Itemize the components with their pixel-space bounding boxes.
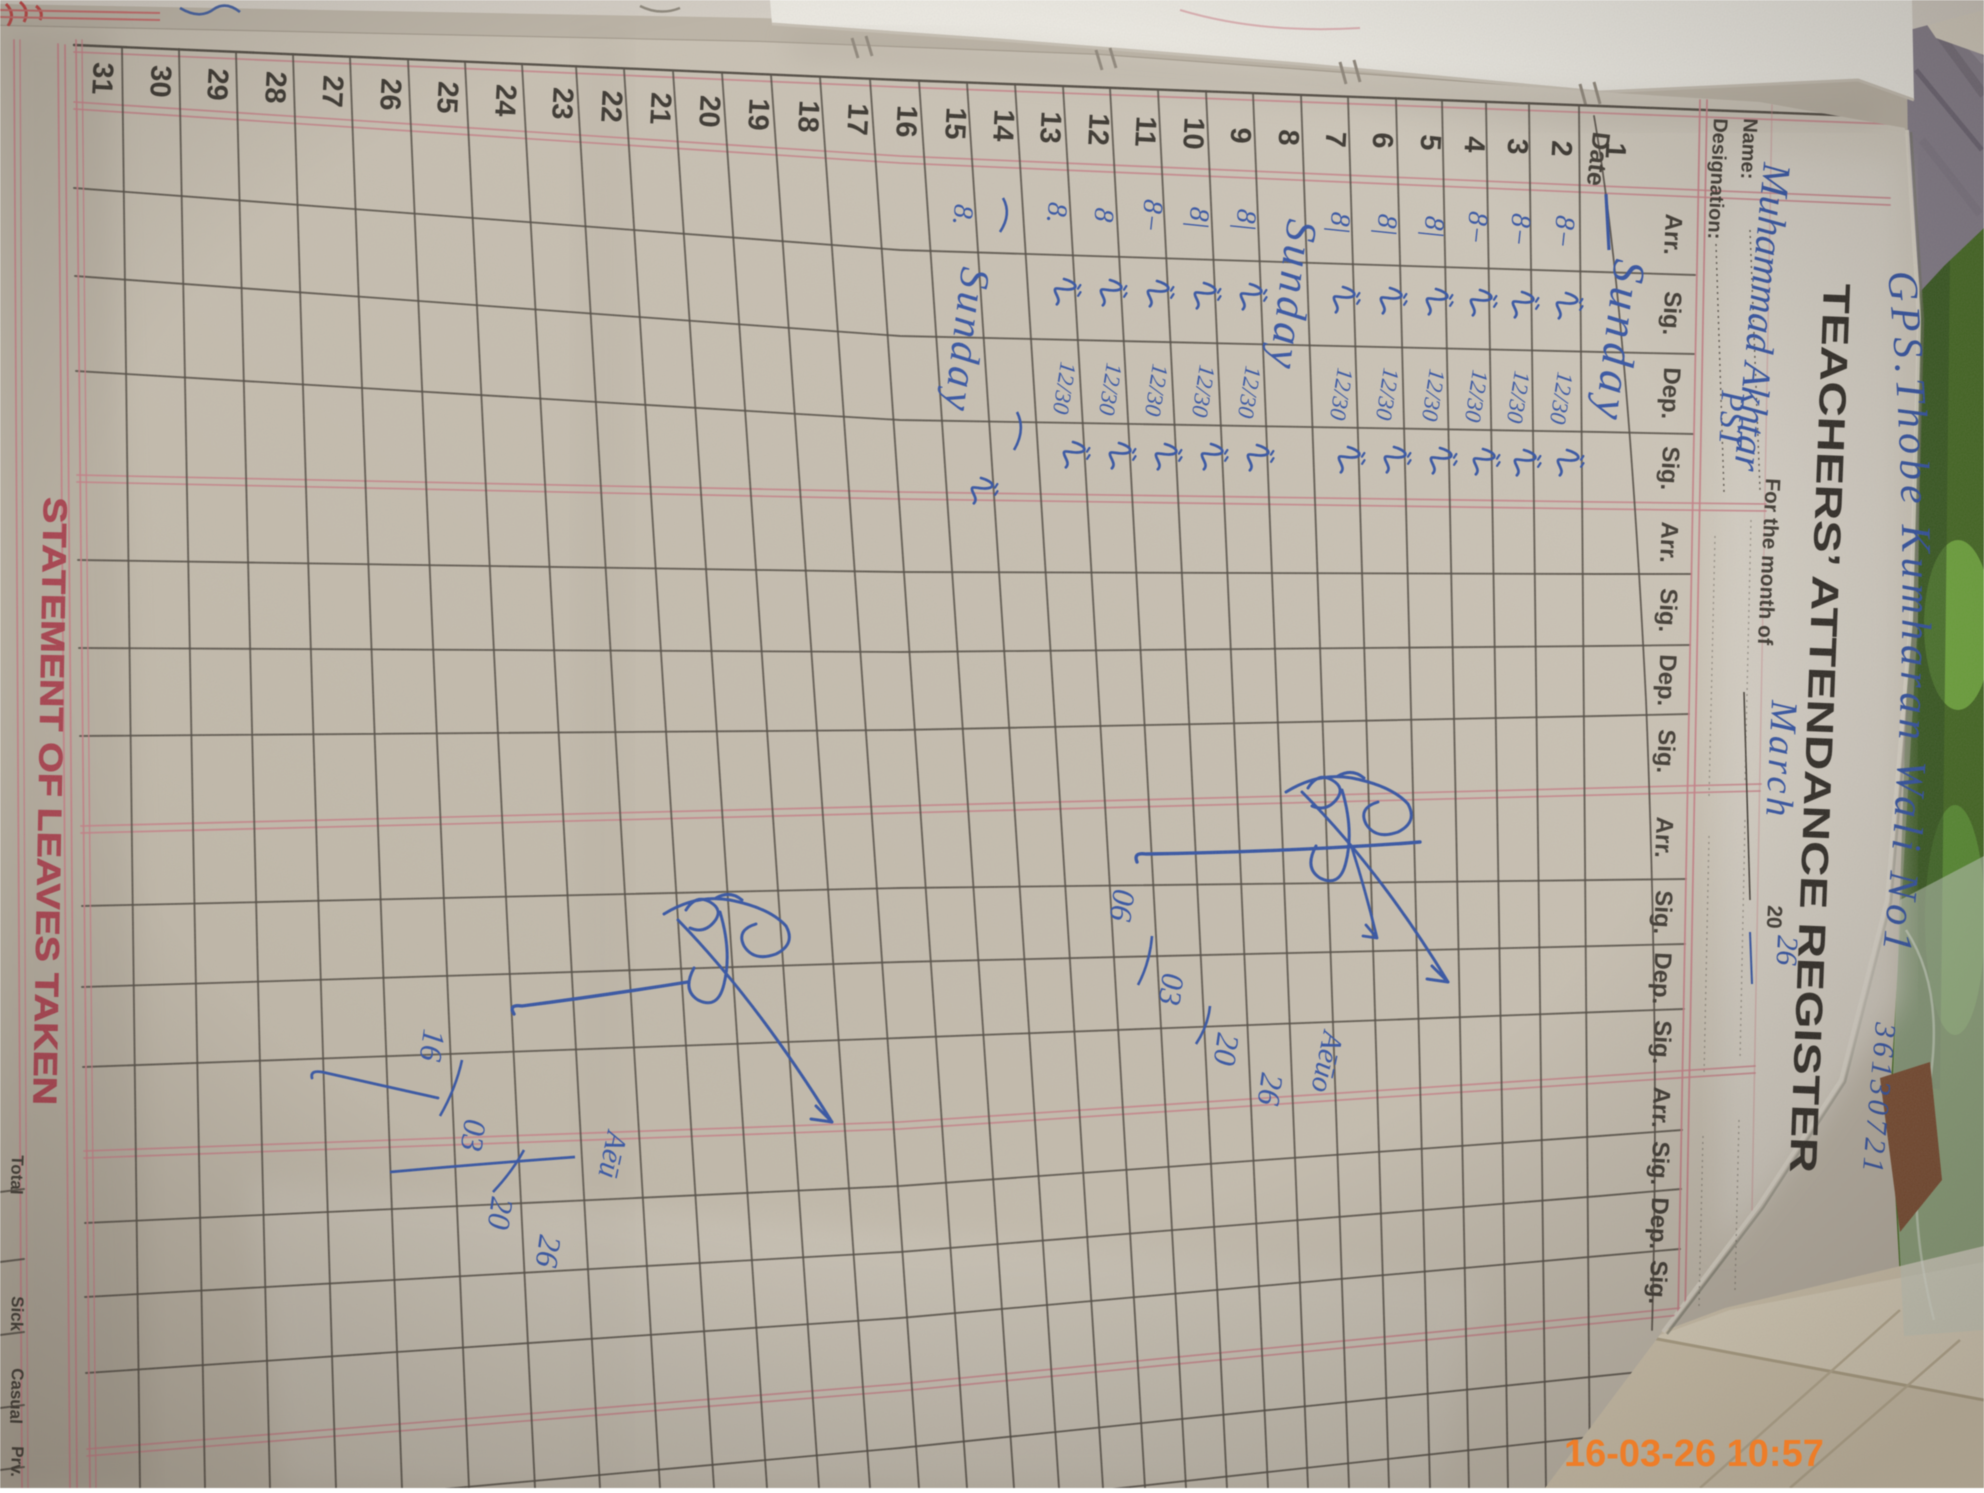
svg-text:16-03-26 10:57: 16-03-26 10:57 [1564,1433,1824,1475]
